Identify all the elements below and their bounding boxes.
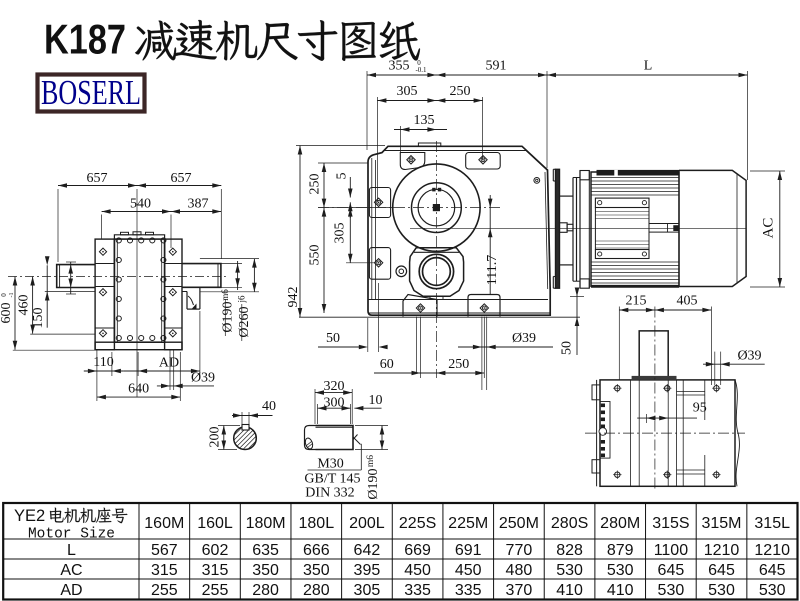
- svg-text:200: 200: [208, 427, 223, 448]
- svg-text:770: 770: [506, 542, 533, 559]
- svg-text:Ø39: Ø39: [737, 348, 761, 363]
- svg-text:320: 320: [324, 379, 345, 394]
- svg-text:110: 110: [93, 355, 113, 370]
- svg-text:645: 645: [759, 562, 786, 579]
- svg-text:180L: 180L: [299, 515, 335, 532]
- svg-text:Ø39: Ø39: [512, 331, 536, 346]
- svg-text:0: 0: [0, 293, 8, 297]
- svg-text:315S: 315S: [652, 515, 689, 532]
- svg-text:255: 255: [202, 582, 229, 599]
- svg-text:640: 640: [128, 381, 149, 396]
- svg-text:370: 370: [506, 582, 533, 599]
- svg-text:315M: 315M: [701, 515, 741, 532]
- svg-text:635: 635: [252, 542, 279, 559]
- svg-text:135: 135: [414, 113, 435, 128]
- svg-text:Motor Size: Motor Size: [28, 527, 115, 543]
- svg-text:405: 405: [677, 294, 698, 309]
- svg-text:600: 600: [0, 303, 14, 324]
- svg-text:567: 567: [151, 542, 178, 559]
- svg-text:AC: AC: [761, 218, 777, 239]
- svg-text:250: 250: [450, 84, 471, 99]
- svg-text:355: 355: [389, 59, 410, 74]
- svg-text:160M: 160M: [144, 515, 184, 532]
- svg-text:40: 40: [262, 399, 276, 414]
- svg-text:530: 530: [708, 582, 735, 599]
- svg-text:315: 315: [202, 562, 229, 579]
- svg-text:315: 315: [151, 562, 178, 579]
- svg-text:645: 645: [708, 562, 735, 579]
- svg-text:657: 657: [171, 171, 192, 186]
- svg-text:Ø190: Ø190: [366, 468, 381, 499]
- svg-text:540: 540: [130, 197, 151, 212]
- svg-text:657: 657: [87, 171, 108, 186]
- svg-text:Ø260: Ø260: [237, 306, 252, 337]
- svg-text:Ø39: Ø39: [191, 371, 215, 386]
- svg-text:1210: 1210: [704, 542, 740, 559]
- svg-text:YE2: YE2: [14, 507, 45, 525]
- svg-text:10: 10: [369, 393, 383, 408]
- svg-text:300: 300: [324, 396, 345, 411]
- svg-text:200L: 200L: [349, 515, 385, 532]
- svg-text:L: L: [644, 59, 653, 74]
- svg-text:602: 602: [202, 542, 229, 559]
- svg-text:530: 530: [658, 582, 685, 599]
- svg-text:879: 879: [607, 542, 634, 559]
- svg-text:50: 50: [326, 331, 340, 346]
- svg-text:225M: 225M: [448, 515, 488, 532]
- svg-text:AC: AC: [60, 562, 82, 579]
- svg-text:-1: -1: [9, 293, 15, 298]
- svg-text:315L: 315L: [754, 515, 790, 532]
- svg-text:GB/T 145: GB/T 145: [304, 471, 360, 486]
- svg-text:350: 350: [303, 562, 330, 579]
- svg-text:250: 250: [448, 357, 469, 372]
- svg-text:530: 530: [607, 562, 634, 579]
- svg-text:645: 645: [658, 562, 685, 579]
- svg-text:215: 215: [626, 294, 647, 309]
- svg-text:60: 60: [380, 357, 394, 372]
- svg-text:395: 395: [354, 562, 381, 579]
- svg-text:m6: m6: [220, 289, 230, 301]
- svg-text:305: 305: [333, 223, 348, 244]
- svg-text:280M: 280M: [600, 515, 640, 532]
- svg-text:255: 255: [151, 582, 178, 599]
- svg-text:410: 410: [556, 582, 583, 599]
- svg-text:AD: AD: [60, 582, 82, 599]
- svg-text:669: 669: [404, 542, 431, 559]
- svg-text:m6: m6: [366, 455, 376, 467]
- svg-text:180M: 180M: [246, 515, 286, 532]
- svg-text:550: 550: [308, 245, 323, 266]
- svg-text:BOSERL: BOSERL: [41, 73, 141, 112]
- svg-text:642: 642: [354, 542, 381, 559]
- svg-text:1210: 1210: [754, 542, 790, 559]
- svg-text:591: 591: [486, 59, 507, 74]
- svg-text:280: 280: [303, 582, 330, 599]
- svg-text:AD: AD: [159, 356, 179, 371]
- svg-text:350: 350: [252, 562, 279, 579]
- svg-text:387: 387: [188, 197, 209, 212]
- svg-text:j6: j6: [237, 295, 247, 304]
- svg-text:530: 530: [556, 562, 583, 579]
- svg-text:95: 95: [693, 401, 707, 416]
- svg-text:666: 666: [303, 542, 330, 559]
- svg-text:250M: 250M: [499, 515, 539, 532]
- svg-text:942: 942: [286, 287, 301, 308]
- svg-text:5: 5: [335, 173, 350, 180]
- svg-text:450: 450: [404, 562, 431, 579]
- svg-text:410: 410: [607, 582, 634, 599]
- svg-text:50: 50: [560, 341, 575, 355]
- svg-text:450: 450: [455, 562, 482, 579]
- svg-text:DIN 332: DIN 332: [305, 486, 354, 501]
- svg-text:530: 530: [759, 582, 786, 599]
- svg-text:460: 460: [17, 295, 32, 316]
- svg-text:305: 305: [397, 84, 418, 99]
- svg-text:335: 335: [455, 582, 482, 599]
- svg-text:305: 305: [354, 582, 381, 599]
- svg-text:160L: 160L: [197, 515, 233, 532]
- svg-text:M30: M30: [317, 457, 343, 472]
- svg-text:1100: 1100: [654, 542, 689, 559]
- svg-text:111.7: 111.7: [485, 255, 500, 285]
- svg-text:480: 480: [506, 562, 533, 579]
- svg-text:K187: K187: [44, 16, 126, 63]
- svg-text:150: 150: [31, 308, 46, 329]
- svg-text:Ø190: Ø190: [220, 301, 235, 332]
- svg-text:280: 280: [252, 582, 279, 599]
- svg-text:828: 828: [556, 542, 583, 559]
- svg-text:250: 250: [308, 174, 323, 195]
- svg-text:-0.1: -0.1: [415, 66, 427, 74]
- svg-text:335: 335: [404, 582, 431, 599]
- svg-text:225S: 225S: [399, 515, 436, 532]
- svg-text:L: L: [67, 542, 76, 559]
- svg-text:691: 691: [455, 542, 482, 559]
- svg-text:280S: 280S: [551, 515, 588, 532]
